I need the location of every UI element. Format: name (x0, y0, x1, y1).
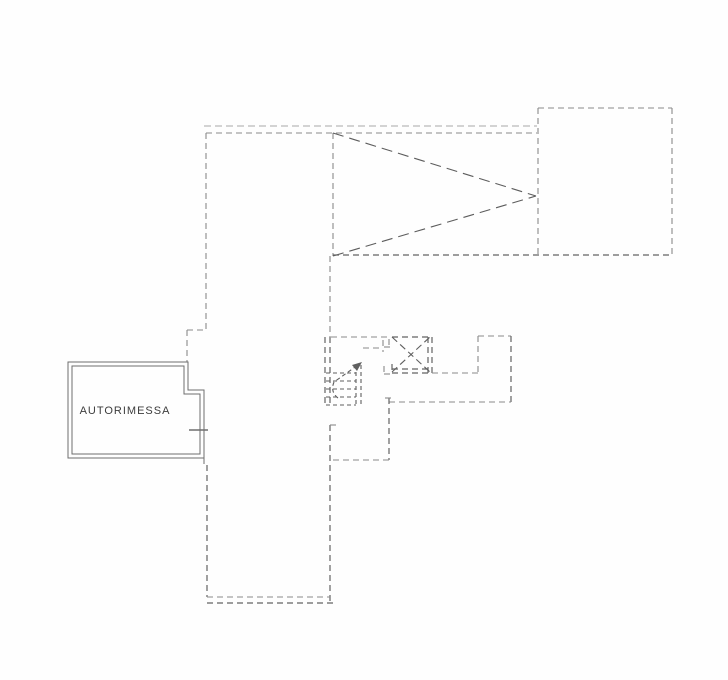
floor-plan: AUTORIMESSA (0, 0, 728, 680)
scanned-floorplan-page: AUTORIMESSA (0, 0, 728, 680)
plan-lines (68, 108, 672, 603)
garage-room-label: AUTORIMESSA (80, 405, 171, 417)
gable-diagonal-bottom (333, 196, 536, 256)
shaft-cross-diagonal-2 (392, 337, 430, 372)
gable-diagonal-top (333, 133, 536, 196)
